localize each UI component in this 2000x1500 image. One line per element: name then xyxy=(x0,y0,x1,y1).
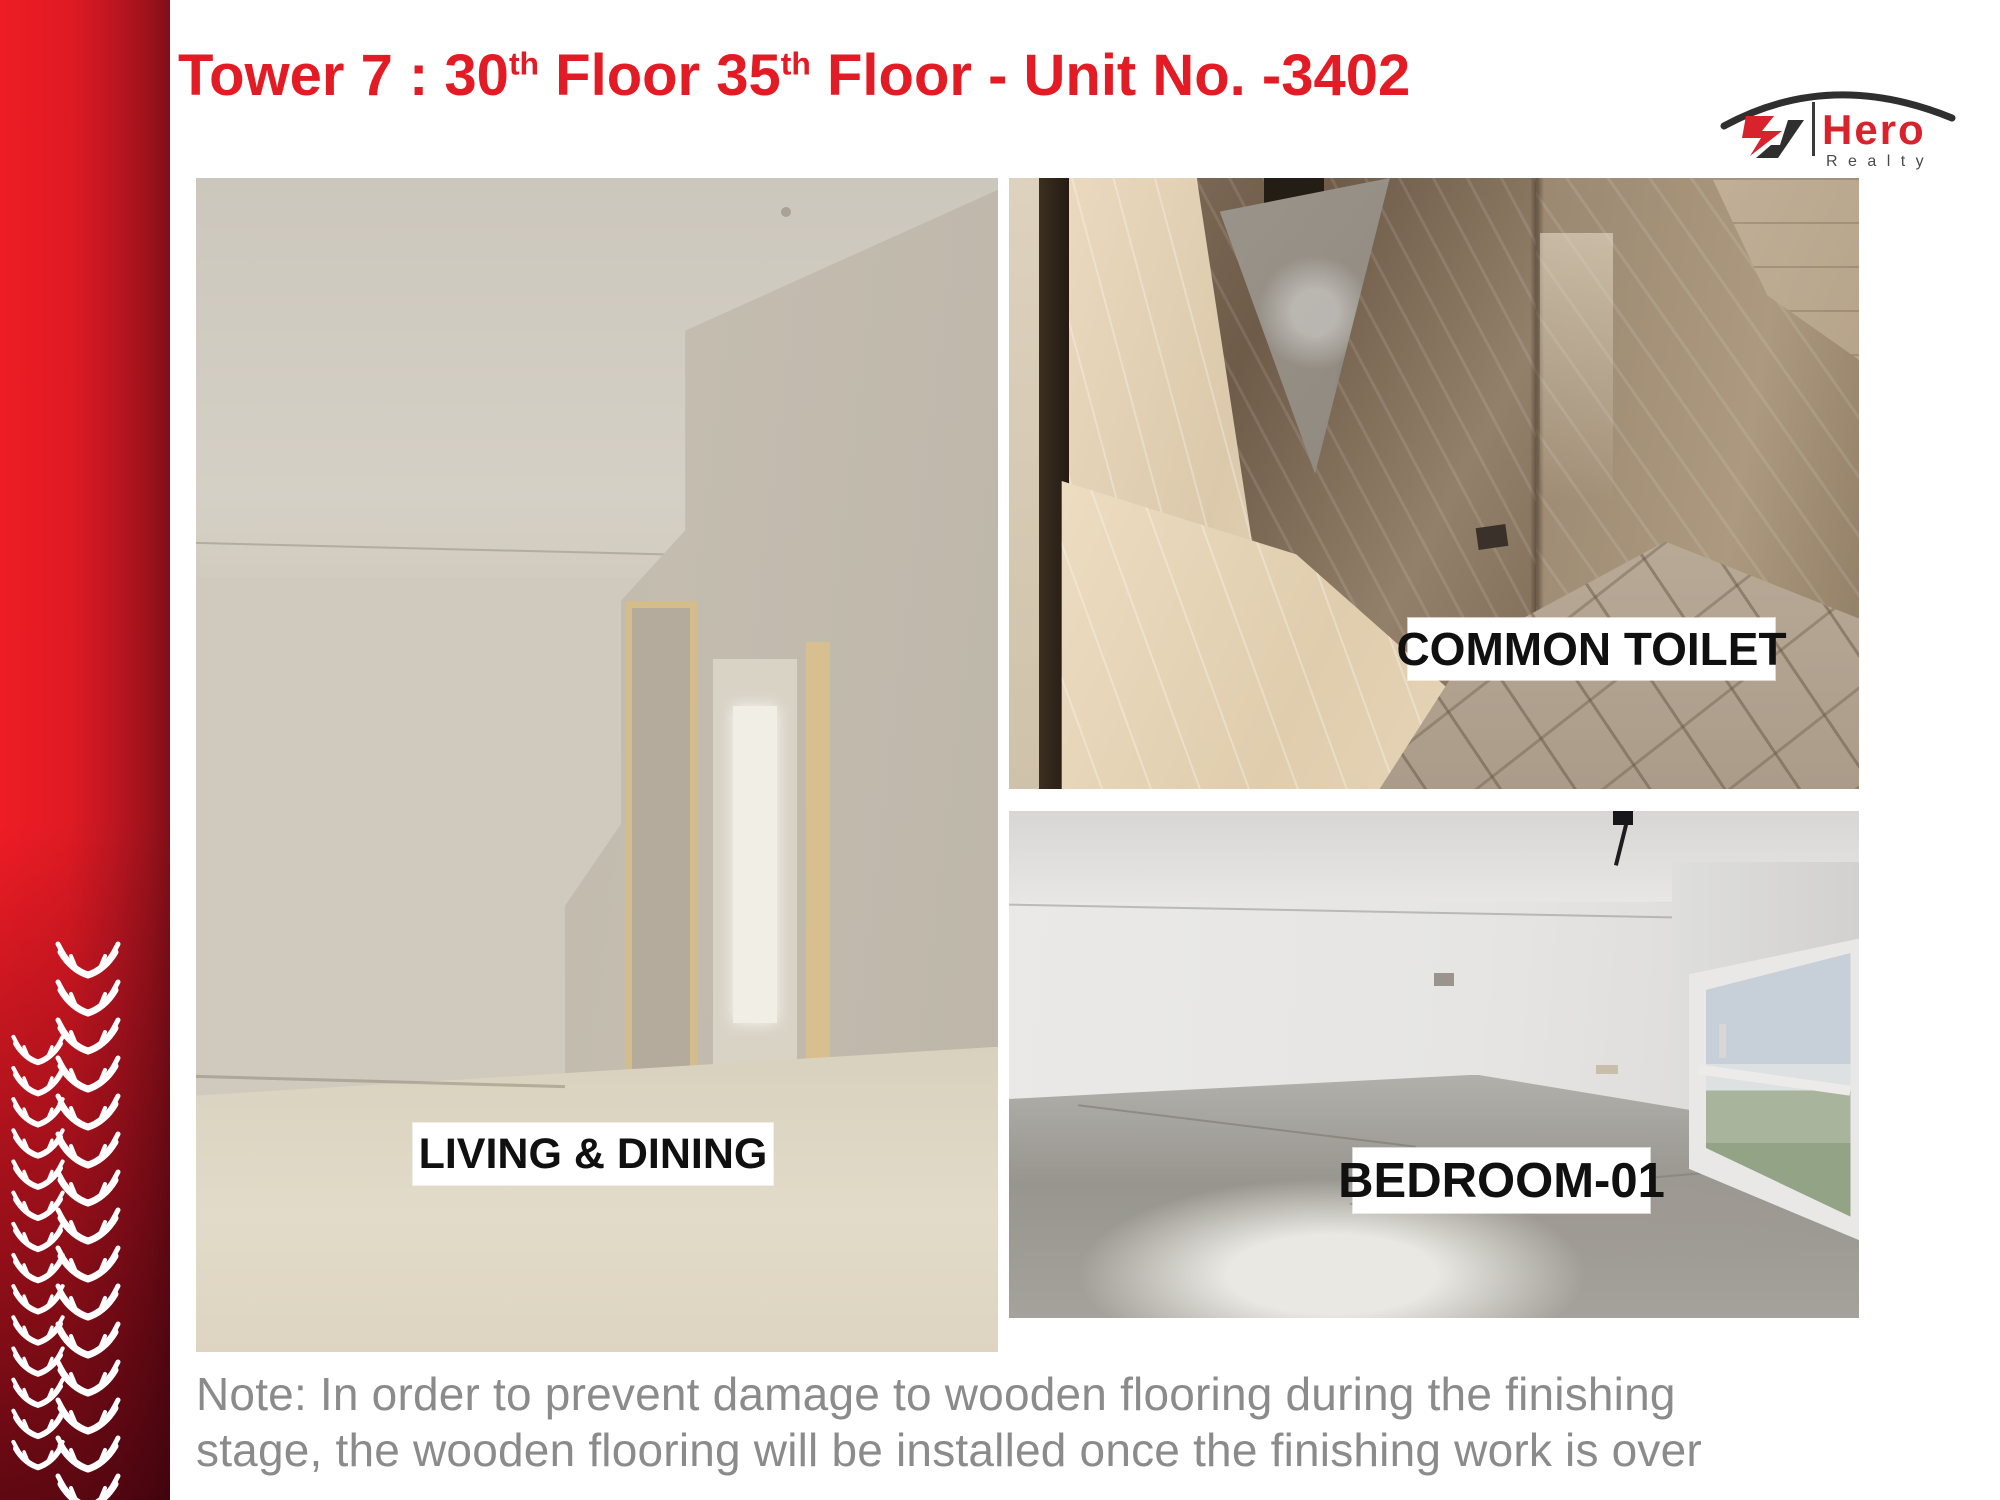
br-ceiling-hook xyxy=(1613,811,1633,825)
logo-brand-text: Hero xyxy=(1822,106,1926,153)
br-window-handle xyxy=(1719,1024,1726,1058)
red-side-band xyxy=(0,0,170,1500)
bedroom-01-label-text: BEDROOM-01 xyxy=(1338,1153,1665,1209)
page-title: Tower 7 : 30th Floor 35th Floor - Unit N… xyxy=(178,46,1658,107)
common-toilet-photo: COMMON TOILET xyxy=(1009,178,1859,789)
ld-floor xyxy=(196,1047,998,1352)
slide: Tower 7 : 30th Floor 35th Floor - Unit N… xyxy=(0,0,2000,1500)
footer-note-line2: stage, the wooden flooring will be insta… xyxy=(196,1422,1956,1478)
footer-note: Note: In order to prevent damage to wood… xyxy=(196,1366,1956,1478)
title-part1: Tower 7 : 30 xyxy=(178,43,509,108)
common-toilet-label-text: COMMON TOILET xyxy=(1396,622,1786,676)
ld-door-frame xyxy=(806,642,830,1076)
ct-left-wall-edge xyxy=(1009,178,1039,789)
ld-far-bright-room xyxy=(733,706,777,1023)
common-toilet-label: COMMON TOILET xyxy=(1408,618,1775,680)
living-dining-label-text: LIVING & DINING xyxy=(419,1130,768,1179)
br-wall-outlet xyxy=(1596,1065,1618,1074)
living-dining-label: LIVING & DINING xyxy=(413,1123,773,1185)
hero-realty-logo: Hero R e a l t y xyxy=(1688,52,1970,170)
title-superscript-1: th xyxy=(509,46,539,82)
bedroom-01-photo: BEDROOM-01 xyxy=(1009,811,1859,1318)
wheat-decoration-icon xyxy=(0,930,170,1500)
title-part2: Floor 35 xyxy=(539,43,781,108)
ct-drain-box xyxy=(1475,524,1508,550)
ld-door-frame xyxy=(625,601,697,1141)
logo-divider xyxy=(1812,102,1815,156)
logo-division-text: R e a l t y xyxy=(1826,153,1927,170)
title-superscript-2: th xyxy=(781,46,811,82)
bedroom-01-label: BEDROOM-01 xyxy=(1353,1148,1650,1213)
ct-niche-highlight xyxy=(1540,233,1612,502)
title-part3: Floor - Unit No. -3402 xyxy=(811,43,1410,108)
living-dining-photo: LIVING & DINING xyxy=(196,178,998,1352)
footer-note-line1: Note: In order to prevent damage to wood… xyxy=(196,1366,1956,1422)
br-wall-outlet xyxy=(1434,973,1454,986)
